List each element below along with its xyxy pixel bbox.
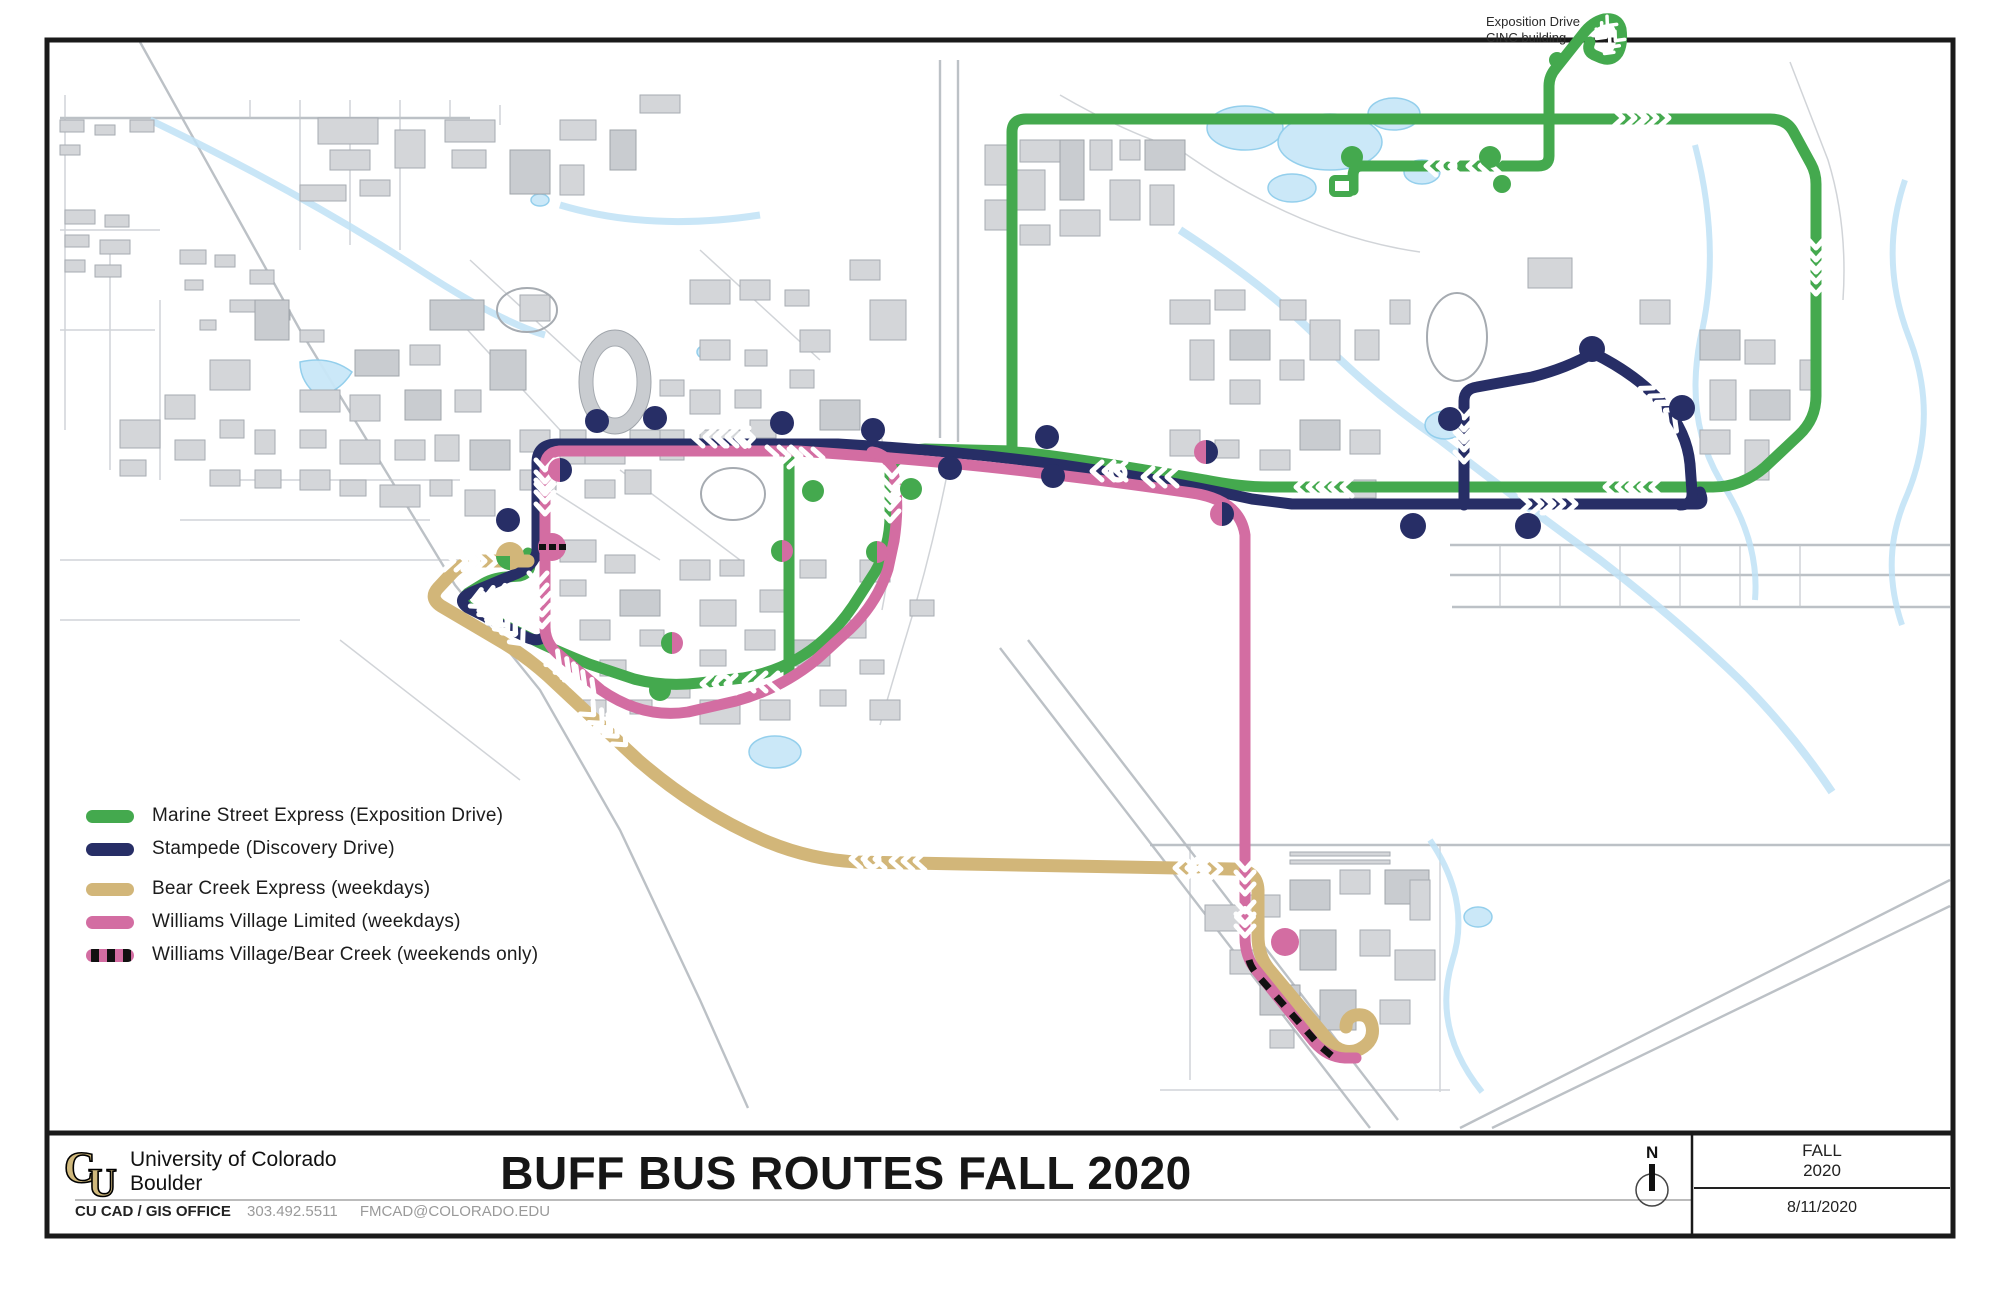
sheet-info-box: FALL 2020 8/11/2020 <box>1694 1135 1950 1235</box>
office-email: FMCAD@COLORADO.EDU <box>360 1203 550 1220</box>
route-marine-street-express <box>464 19 1816 685</box>
legend-swatch-pink-dashed <box>86 949 134 962</box>
season-line1: FALL <box>1694 1141 1950 1161</box>
cinc-label-line1: Exposition Drive <box>1486 14 1580 30</box>
route-legend: Marine Street Express (Exposition Drive)… <box>86 802 538 974</box>
office-name: CU CAD / GIS OFFICE <box>75 1203 231 1220</box>
revision-date: 8/11/2020 <box>1694 1199 1950 1217</box>
buff-bus-map-page: Exposition Drive CINC building Marine St… <box>0 0 2000 1294</box>
legend-label: Stampede (Discovery Drive) <box>152 838 395 860</box>
office-phone: 303.492.5511 <box>247 1203 338 1220</box>
legend-item-marine-street-express: Marine Street Express (Exposition Drive) <box>86 802 538 830</box>
route-bear-creek-express <box>434 561 1372 1052</box>
north-label-glyph: N <box>1646 1143 1658 1162</box>
season-line2: 2020 <box>1694 1161 1950 1181</box>
legend-swatch-tan <box>86 883 134 896</box>
route-green-north-spur <box>1353 119 1549 190</box>
map-title: BUFF BUS ROUTES FALL 2020 <box>0 1146 1692 1200</box>
legend-label: Williams Village Limited (weekdays) <box>152 911 461 933</box>
stop-weekend-umc <box>538 533 566 561</box>
legend-label: Williams Village/Bear Creek (weekends on… <box>152 944 538 966</box>
campus-bus-route-map <box>0 0 2000 1294</box>
legend-label: Marine Street Express (Exposition Drive) <box>152 805 503 827</box>
legend-swatch-green <box>86 810 134 823</box>
contact-line: CU CAD / GIS OFFICE 303.492.5511 FMCAD@C… <box>75 1203 550 1220</box>
green-terminal-loop <box>1332 178 1352 194</box>
legend-swatch-pink <box>86 916 134 929</box>
legend-item-williams-village-bear-creek: Williams Village/Bear Creek (weekends on… <box>86 941 538 969</box>
legend-swatch-navy <box>86 843 134 856</box>
legend-item-williams-village-limited: Williams Village Limited (weekdays) <box>86 908 538 936</box>
legend-item-stampede: Stampede (Discovery Drive) <box>86 835 538 863</box>
cinc-building-label: Exposition Drive CINC building <box>1486 14 1580 46</box>
legend-item-bear-creek: Bear Creek Express (weekdays) <box>86 875 538 903</box>
cinc-label-line2: CINC building <box>1486 30 1580 46</box>
stop-williams-village <box>1271 928 1299 956</box>
north-arrow: N <box>1618 1140 1688 1235</box>
legend-label: Bear Creek Express (weekdays) <box>152 878 430 900</box>
info-box-divider <box>1694 1187 1950 1189</box>
stop-three-route <box>496 542 524 570</box>
